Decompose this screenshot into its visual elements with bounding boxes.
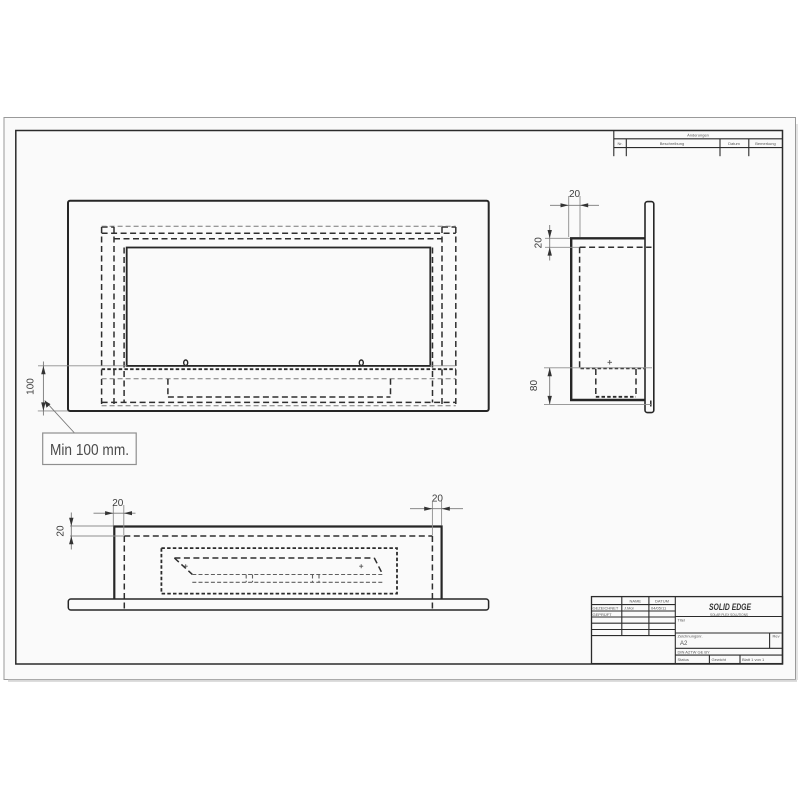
svg-text:20: 20 xyxy=(56,525,67,537)
svg-text:GEZEICHNET: GEZEICHNET xyxy=(593,606,619,611)
svg-text:GEPRÜFT: GEPRÜFT xyxy=(593,612,613,617)
svg-text:Datum: Datum xyxy=(728,141,740,146)
svg-text:Titel: Titel xyxy=(678,617,686,622)
svg-text:Nr.: Nr. xyxy=(617,141,622,146)
svg-text:Status: Status xyxy=(678,657,689,662)
svg-text:J.Mol: J.Mol xyxy=(624,606,634,611)
svg-text:A2: A2 xyxy=(680,641,688,647)
svg-text:20: 20 xyxy=(569,189,581,200)
svg-text:Rev: Rev xyxy=(773,634,780,639)
svg-text:Blatt 1 von 1: Blatt 1 von 1 xyxy=(742,657,765,662)
svg-text:Gewicht: Gewicht xyxy=(712,657,727,662)
svg-text:Min 100 mm.: Min 100 mm. xyxy=(50,442,129,459)
svg-text:Beschreibung: Beschreibung xyxy=(660,141,684,146)
svg-text:100: 100 xyxy=(26,378,37,395)
svg-text:NAME: NAME xyxy=(630,599,642,604)
svg-text:20: 20 xyxy=(432,494,444,505)
svg-text:80: 80 xyxy=(529,380,540,392)
svg-text:04/05/11: 04/05/11 xyxy=(651,606,667,611)
svg-text:DIN A2TW GE BY: DIN A2TW GE BY xyxy=(678,650,711,655)
svg-text:Bemerkung: Bemerkung xyxy=(755,141,775,146)
svg-text:DATUM: DATUM xyxy=(655,599,669,604)
svg-text:SOLAR PLEX SOLUTIONS: SOLAR PLEX SOLUTIONS xyxy=(710,612,748,617)
svg-text:20: 20 xyxy=(534,237,545,249)
svg-text:20: 20 xyxy=(112,498,124,509)
svg-text:Änderungen: Änderungen xyxy=(687,133,709,138)
svg-text:Zeichnungsnr.: Zeichnungsnr. xyxy=(678,634,703,639)
